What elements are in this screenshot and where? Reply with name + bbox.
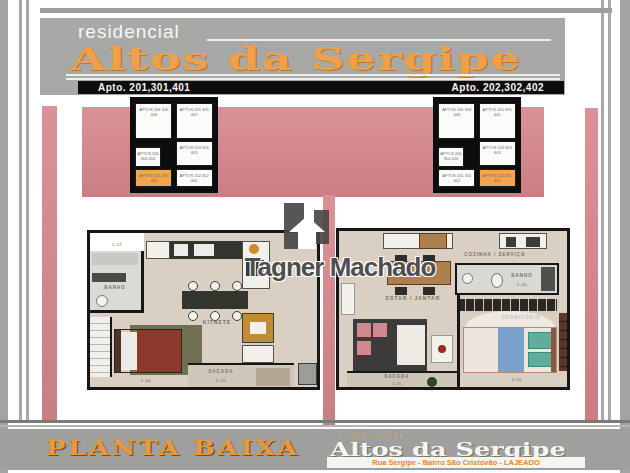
room-label-sacada: SACADA — [188, 369, 254, 374]
watermark-name: Tagner Machado — [230, 252, 450, 283]
washer — [506, 237, 516, 247]
header: residencial Altos da Sergipe Apto. 201,3… — [40, 18, 565, 95]
key-plan-left: APTOS 206 306 406 APTOS 205 305 405 APTO… — [130, 97, 218, 193]
key-cell: APTOS 204 304 404 — [438, 147, 463, 167]
header-brand-name: Altos da Sergipe — [70, 41, 521, 77]
tv — [250, 322, 266, 334]
balcony: SACADA 1.45 — [347, 371, 457, 387]
key-cell-highlighted: APTOS 201 301 401 — [135, 169, 172, 187]
watermark-logo — [284, 203, 336, 251]
cushion — [357, 341, 371, 355]
dimension-label: 1.12 — [90, 242, 144, 247]
address-strip: Rua Sergipe - Bairro São Cristóvão - LAJ… — [327, 457, 585, 468]
cushion — [357, 323, 371, 337]
right-stripe-1 — [601, 0, 604, 420]
room-label-sacada: SACADA — [367, 374, 427, 379]
closet — [457, 299, 557, 311]
bed — [114, 329, 182, 373]
key-cell: APTOS 202 302 402 — [176, 169, 213, 187]
coffee-table — [431, 335, 453, 363]
footer: PLANTA BAIXA residencial Altos da Sergip… — [0, 429, 630, 470]
key-cell: APTOS 203 303 403 — [176, 141, 213, 166]
key-cell: APTOS 201 301 401 — [438, 169, 475, 187]
sink-icon — [462, 273, 473, 284]
decor-icon — [438, 345, 446, 353]
desk — [341, 283, 355, 315]
left-border-bar — [0, 0, 8, 473]
bedspread — [498, 328, 524, 372]
dimension-label: 1.20 — [188, 378, 254, 383]
cushion — [373, 323, 387, 337]
left-stripe-2 — [26, 0, 29, 420]
dimension-label: 1.45 — [367, 382, 427, 386]
shelves — [559, 313, 567, 371]
apto-bar: Apto. 201,301,401 Apto. 202,302,402 — [78, 81, 564, 94]
bathroom: BANHO — [90, 251, 144, 313]
island-counter — [182, 291, 248, 309]
dimension-label: 2.20 — [497, 282, 547, 287]
plant-icon — [427, 377, 437, 387]
balcony: SACADA 1.20 — [188, 363, 294, 387]
stool — [188, 281, 198, 291]
apto-label-left: Apto. 201,301,401 — [98, 82, 190, 93]
key-cell: APTOS 206 306 406 — [135, 103, 172, 140]
key-cell: APTOS 205 305 405 — [479, 103, 516, 140]
cabinet — [242, 313, 274, 343]
key-plan-right: APTOS 206 306 406 APTOS 205 305 405 APTO… — [433, 97, 521, 193]
pillow — [528, 352, 552, 367]
flyer-canvas: residencial Altos da Sergipe Apto. 201,3… — [0, 0, 630, 473]
shower — [541, 267, 555, 291]
headboard — [551, 328, 556, 372]
laundry-counter — [499, 233, 547, 249]
key-cell: APTOS 205 305 405 — [176, 103, 213, 140]
house-icon — [289, 216, 325, 232]
counter-wood — [419, 233, 447, 249]
sink — [174, 244, 188, 256]
stool — [210, 281, 220, 291]
room-label-cozinha: COZINHA / SERVIÇO — [435, 252, 555, 257]
key-cell-highlighted: APTOS 202 302 402 — [479, 169, 516, 187]
footer-title: PLANTA BAIXA — [46, 436, 300, 460]
address-text: Rua Sergipe - Bairro São Cristóvão - LAJ… — [327, 457, 585, 468]
room-label-banho: BANHO — [497, 273, 547, 278]
room-label-estar: ESTAR / JANTAR — [375, 295, 451, 301]
header-underline-2 — [66, 74, 560, 76]
top-rule — [40, 8, 612, 13]
dining-chair — [395, 287, 407, 295]
pillow — [528, 332, 552, 349]
right-stripe-2 — [608, 0, 611, 420]
footer-rule-light — [0, 425, 630, 427]
bedspread — [137, 330, 181, 372]
balcony-mat — [256, 368, 290, 386]
right-border-bar — [620, 0, 630, 473]
pillows — [121, 332, 137, 370]
console — [242, 345, 274, 363]
key-cell: APTOS 206 306 406 — [438, 103, 475, 140]
footer-rule-dark — [0, 420, 630, 423]
header-brand-small: residencial — [78, 21, 180, 43]
left-stripe-1 — [19, 0, 22, 420]
vanity — [92, 273, 126, 282]
key-cell: APTOS 204 304 404 — [135, 147, 160, 167]
pink-column-right — [585, 108, 598, 420]
toilet-icon — [96, 295, 108, 307]
apto-label-right: Apto. 202,302,402 — [452, 82, 544, 93]
tank — [526, 237, 540, 247]
bed — [463, 327, 557, 373]
key-cell: APTOS 203 303 403 — [479, 141, 516, 166]
wardrobe — [90, 317, 112, 377]
dimension-label: 2.50 — [487, 377, 547, 382]
exterior-notch: 1.12 — [90, 233, 144, 251]
cooktop — [194, 244, 214, 256]
shower — [92, 253, 138, 265]
dimension-label: 2.00 — [379, 363, 409, 368]
bedroom-wall — [457, 295, 460, 389]
fridge — [146, 241, 170, 259]
room-label-banho: BANHO — [90, 285, 140, 290]
bathroom: BANHO 2.20 — [455, 263, 559, 295]
pink-column-left — [42, 106, 57, 420]
house-icon-base — [298, 232, 316, 249]
header-underline-3 — [66, 78, 560, 80]
balcony-mat — [298, 363, 317, 385]
dimension-label: 2.60 — [126, 378, 166, 383]
dining-chair — [423, 287, 435, 295]
chaise — [397, 325, 425, 365]
